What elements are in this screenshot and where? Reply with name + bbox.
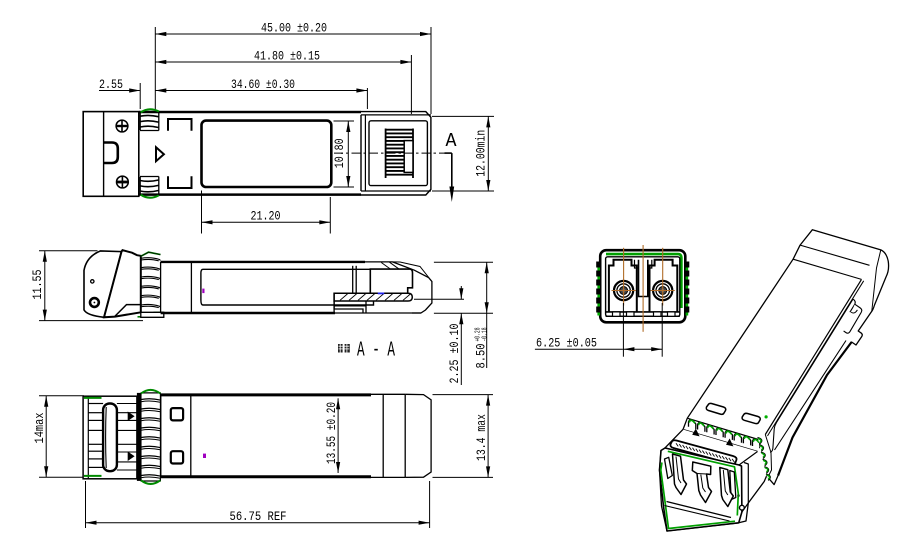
svg-text:A - A: A - A bbox=[357, 340, 395, 363]
svg-text:13.4 max: 13.4 max bbox=[475, 414, 489, 461]
svg-text:-0.18: -0.18 bbox=[481, 328, 489, 342]
svg-text:21.20: 21.20 bbox=[251, 209, 281, 224]
svg-text:A: A bbox=[446, 130, 458, 152]
svg-text:41.80 ±0.15: 41.80 ±0.15 bbox=[254, 49, 320, 64]
svg-text:2.25 ±0.10: 2.25 ±0.10 bbox=[448, 324, 462, 384]
svg-text:12.00min: 12.00min bbox=[474, 130, 488, 177]
svg-text:2.55: 2.55 bbox=[99, 77, 123, 92]
svg-text:34.60 ±0.30: 34.60 ±0.30 bbox=[231, 77, 295, 92]
svg-text:45.00 ±0.20: 45.00 ±0.20 bbox=[261, 21, 327, 36]
svg-text:14max: 14max bbox=[33, 413, 47, 444]
svg-text:13.55 ±0.20: 13.55 ±0.20 bbox=[325, 402, 339, 464]
svg-text:11.55: 11.55 bbox=[30, 270, 45, 300]
svg-text:10.80: 10.80 bbox=[332, 138, 347, 168]
svg-text:56.75 REF: 56.75 REF bbox=[230, 509, 287, 524]
svg-text:8.50: 8.50 bbox=[474, 344, 488, 369]
svg-text:6.25 ±0.05: 6.25 ±0.05 bbox=[536, 335, 597, 350]
